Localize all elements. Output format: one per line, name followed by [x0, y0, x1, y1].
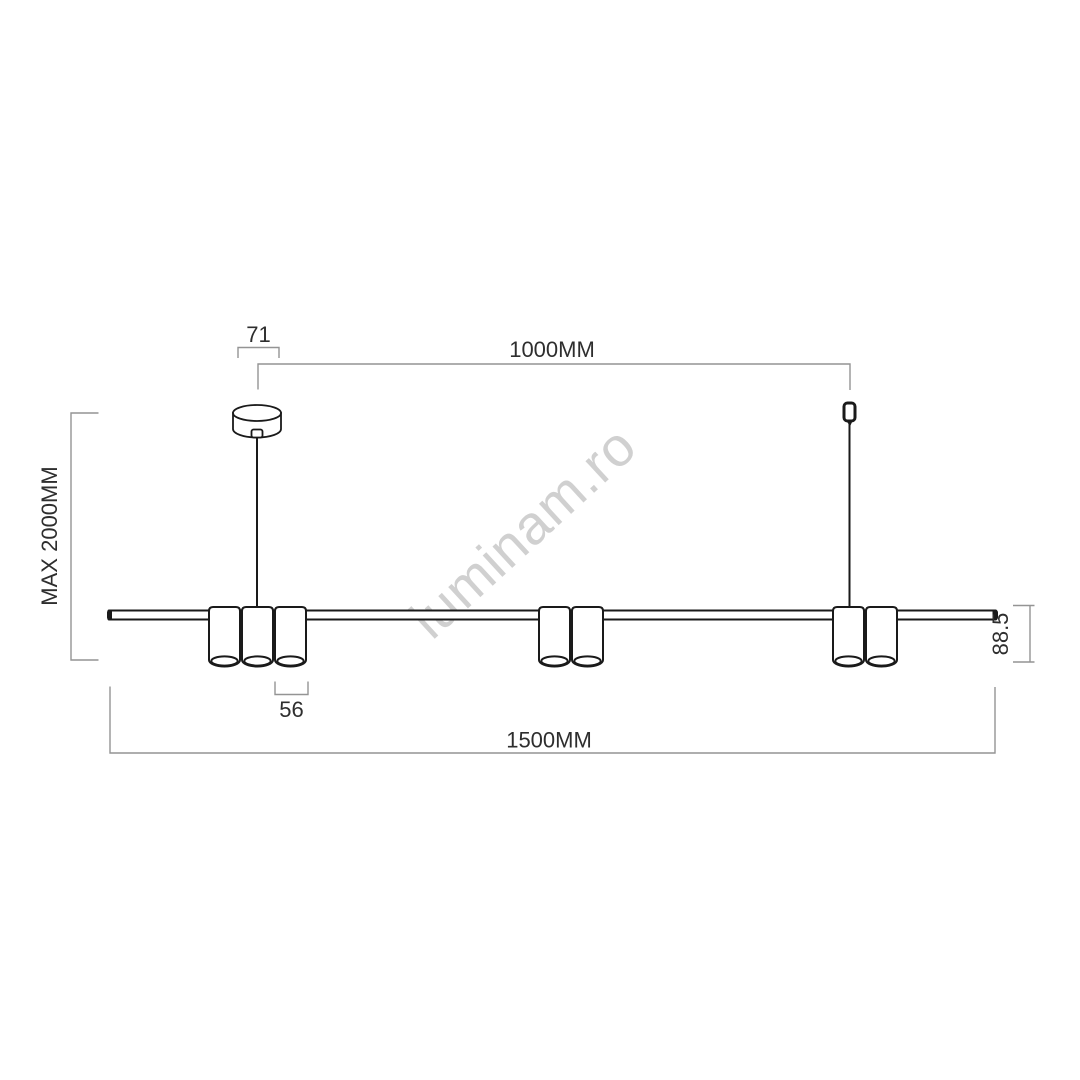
dimension-canopy-width: 71 [238, 322, 279, 358]
spotlight-cylinder [275, 607, 306, 667]
spotlight-cylinder [866, 607, 897, 667]
dimension-label-max-height: MAX 2000MM [37, 466, 62, 605]
pendant-lamp-dimension-diagram: luminam.ro [0, 0, 1080, 1080]
spotlight-cylinder [833, 607, 864, 667]
spotlight-cylinder [242, 607, 273, 667]
dimension-spot-diameter: 56 [275, 682, 308, 723]
spotlight-cylinder [572, 607, 603, 667]
bar-left-endcap [108, 610, 113, 621]
dimension-max-height: MAX 2000MM [37, 413, 99, 660]
dimension-label-body-height: 88.5 [988, 613, 1013, 656]
spotlight-cylinder [539, 607, 570, 667]
ceiling-canopy [233, 405, 281, 438]
cable-gripper [844, 403, 855, 427]
dimension-total-length: 1500MM [110, 687, 995, 754]
canopy-cable-grip [252, 430, 263, 438]
dimension-label-canopy-width: 71 [246, 322, 270, 347]
dimension-suspension-span: 1000MM [258, 337, 850, 390]
spotlight-cylinder [209, 607, 240, 667]
dimension-label-total-length: 1500MM [506, 728, 592, 753]
technical-drawing-canvas: luminam.ro [0, 0, 1080, 1080]
dimension-body-height: 88.5 [988, 606, 1035, 663]
dimension-label-suspension-span: 1000MM [509, 337, 595, 362]
dimension-label-spot-diameter: 56 [279, 697, 303, 722]
